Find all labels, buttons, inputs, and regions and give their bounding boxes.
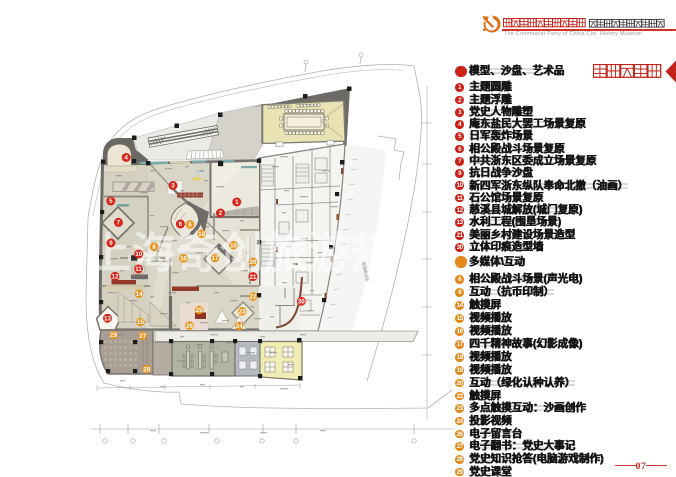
svg-text:12: 12 [112,274,119,281]
svg-text:6: 6 [188,222,192,229]
svg-text:16: 16 [180,256,187,263]
svg-text:11: 11 [135,266,142,273]
svg-text:7: 7 [117,220,121,227]
svg-text:23: 23 [239,309,246,316]
svg-text:26: 26 [186,323,193,330]
svg-text:1: 1 [235,199,239,206]
svg-text:17: 17 [212,255,219,262]
svg-text:8: 8 [152,244,156,251]
svg-text:10: 10 [135,251,142,258]
svg-text:30: 30 [298,299,305,306]
svg-text:3: 3 [171,183,175,190]
svg-text:18: 18 [198,231,205,238]
svg-text:4: 4 [124,155,128,162]
svg-text:29: 29 [110,332,117,339]
svg-text:21: 21 [249,274,256,281]
svg-text:28: 28 [143,366,150,373]
svg-text:27: 27 [139,333,146,340]
svg-text:22: 22 [250,294,257,301]
svg-text:24: 24 [236,323,243,330]
svg-text:25: 25 [196,307,203,314]
svg-text:9: 9 [109,240,113,247]
svg-text:13: 13 [104,315,111,322]
svg-text:5: 5 [109,198,113,205]
svg-text:19: 19 [230,243,237,250]
svg-text:2: 2 [219,210,223,217]
svg-text:15: 15 [137,319,144,326]
svg-text:6: 6 [179,221,183,228]
svg-text:20: 20 [250,259,257,266]
svg-text:14: 14 [136,291,143,298]
